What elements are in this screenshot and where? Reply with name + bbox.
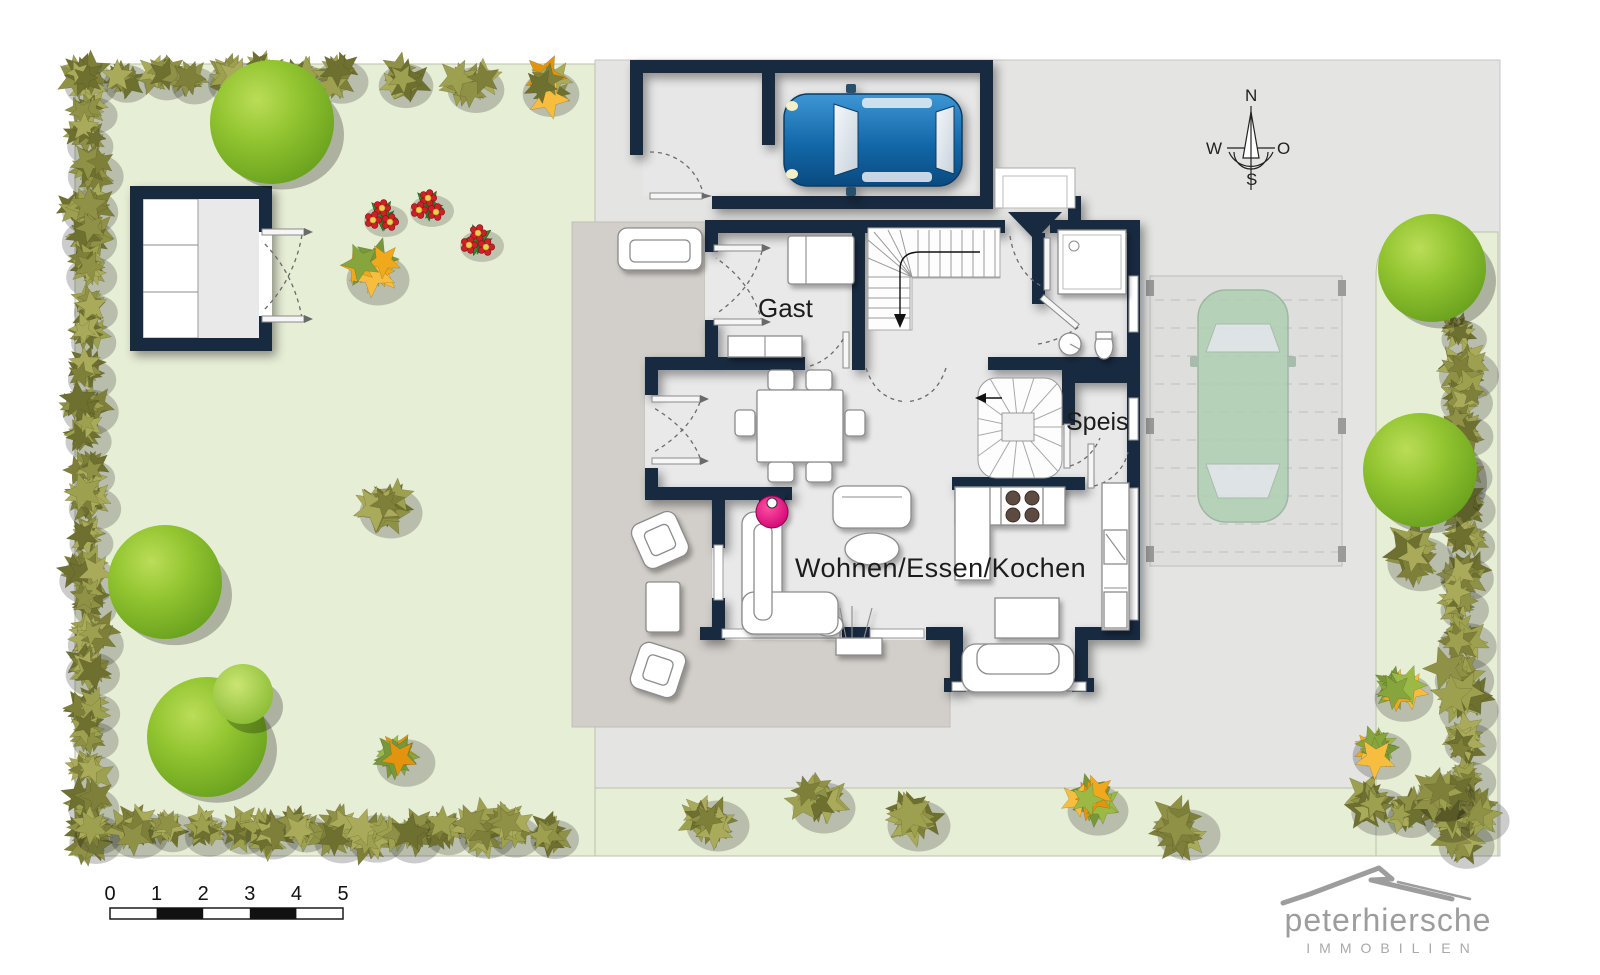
site-plan: Gast Speis Wohnen/Essen/Kochen N W O S 0… [0,0,1600,975]
scale-bar [110,908,343,919]
blue-car [784,84,962,196]
floor-plan-drawing [0,0,1600,975]
brand-subtitle: IMMOBILIEN [1278,940,1498,956]
garden-shed [130,186,272,351]
brand-name: peterhiersche [1278,902,1498,939]
green-car [1190,290,1296,522]
entrance-steps [995,168,1075,208]
roof-icon [1283,868,1470,903]
